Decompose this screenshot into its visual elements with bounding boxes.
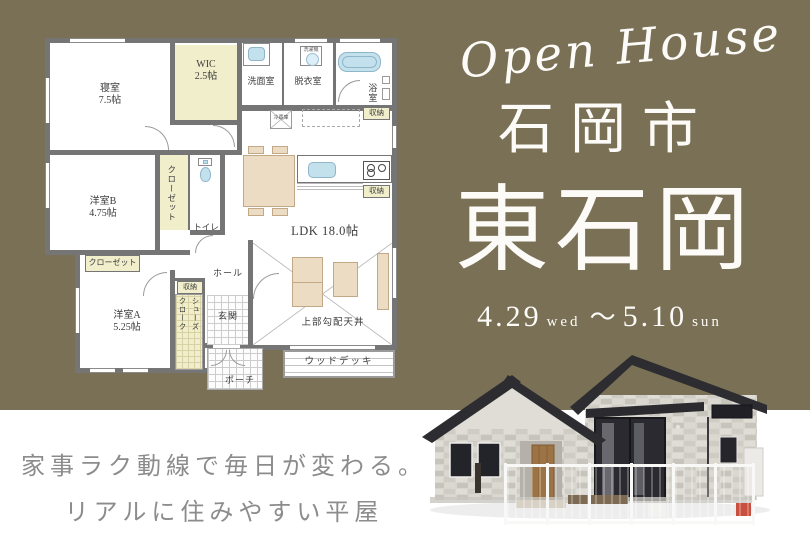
label-bedroom: 寝室 7.5帖 xyxy=(70,83,150,106)
label-entrance: 玄関 xyxy=(208,311,248,321)
label-shoes-closet: クローク シューズ xyxy=(175,297,203,367)
living-table xyxy=(333,262,358,297)
catchcopy-line1: 家事ラク動線で毎日が変わる。 xyxy=(14,446,434,481)
window xyxy=(392,126,397,148)
date-tilde: ～ xyxy=(590,303,619,332)
front-door xyxy=(532,445,554,500)
date-start-num: 4.29 xyxy=(477,300,542,333)
post-box xyxy=(475,463,481,493)
front-window xyxy=(478,443,500,477)
window xyxy=(45,163,50,208)
window xyxy=(290,345,375,350)
label-bath: 浴室 xyxy=(367,78,377,108)
toilet-tank-icon xyxy=(198,158,212,166)
slit-window xyxy=(712,405,752,418)
label-room-a-name: 洋室A xyxy=(87,310,167,322)
label-storage-bath: 収納 xyxy=(363,109,390,118)
wall xyxy=(170,120,237,125)
label-porch: ポーチ xyxy=(217,375,263,385)
room-wic xyxy=(175,45,237,120)
dining-chair xyxy=(272,146,288,154)
planter-red xyxy=(736,503,751,516)
label-room-b: 洋室B 4.75帖 xyxy=(63,196,143,219)
label-shoes-line2: クローク xyxy=(177,297,188,367)
label-wic-size: 2.5帖 xyxy=(175,71,237,83)
label-shoes-line1: シューズ xyxy=(190,297,201,367)
wall xyxy=(203,281,205,370)
area-title: 東石岡 xyxy=(415,184,795,278)
date-end-day: sun xyxy=(692,314,722,330)
kitchen-cabinet-dashed xyxy=(302,109,360,127)
label-washroom: 洗面室 xyxy=(239,76,283,86)
window xyxy=(392,248,397,298)
label-wood-deck: ウッドデッキ xyxy=(285,357,393,368)
dining-chair xyxy=(248,146,264,154)
label-wic: WIC 2.5帖 xyxy=(175,59,237,82)
stove-icon xyxy=(363,161,390,180)
curtain xyxy=(634,423,644,495)
label-sloped-ceiling: 上部勾配天井 xyxy=(283,318,383,329)
window xyxy=(340,38,380,43)
front-window xyxy=(450,443,472,477)
bath-counter-icon xyxy=(382,88,390,100)
label-room-b-size: 4.75帖 xyxy=(63,208,143,220)
house-photo xyxy=(420,345,770,540)
label-ldk: LDK 18.0帖 xyxy=(275,224,375,238)
label-storage-kitchen: 収納 xyxy=(363,187,390,196)
wall xyxy=(188,155,190,230)
dining-chair xyxy=(248,208,264,216)
deck-bench xyxy=(568,495,628,504)
label-storage-hall: 収納 xyxy=(177,283,203,291)
open-house-flyer: 寝室 7.5帖 WIC 2.5帖 洗面室 脱衣室 洗濯機 浴室 収納 冷蔵庫 洋… xyxy=(0,0,810,540)
bathtub-icon xyxy=(338,52,381,72)
planter-white xyxy=(648,503,666,517)
counter-front-lines xyxy=(297,183,363,191)
label-hall: ホール xyxy=(203,268,253,278)
label-laundry: 洗濯機 xyxy=(301,48,321,54)
porch-step xyxy=(516,500,566,508)
label-room-a: 洋室A 5.25帖 xyxy=(87,310,167,333)
window xyxy=(90,368,115,373)
vanity-sink-icon xyxy=(243,43,270,66)
sofa xyxy=(292,257,323,307)
date-start-day: wed xyxy=(547,314,581,330)
label-room-a-size: 5.25帖 xyxy=(87,322,167,334)
small-window xyxy=(720,437,737,463)
date-end-num: 5.10 xyxy=(623,300,688,333)
label-bedroom-size: 7.5帖 xyxy=(70,95,150,107)
label-toilet: トイレ xyxy=(190,223,222,233)
label-fridge: 冷蔵庫 xyxy=(269,116,293,122)
shower-icon xyxy=(382,76,390,84)
wall xyxy=(282,43,284,105)
window xyxy=(123,368,148,373)
label-room-b-name: 洋室B xyxy=(63,196,143,208)
label-bedroom-name: 寝室 xyxy=(70,83,150,95)
window xyxy=(70,38,125,43)
catchcopy-line2: リアルに住みやすい平屋 xyxy=(14,492,434,527)
wall-lamp xyxy=(676,425,680,429)
event-dates: 4.29wed～5.10sun xyxy=(420,297,784,334)
label-dressing: 脱衣室 xyxy=(285,76,331,86)
window xyxy=(75,288,80,333)
wall xyxy=(45,38,50,255)
window xyxy=(295,38,327,43)
label-closet-b: クローゼット xyxy=(166,160,176,226)
window xyxy=(45,78,50,123)
wall xyxy=(333,43,336,107)
toilet-bowl-icon xyxy=(200,167,211,182)
label-closet-a: クローゼット xyxy=(85,258,140,267)
city-title: 石岡市 xyxy=(420,102,792,158)
dining-table xyxy=(243,155,295,207)
dining-chair xyxy=(272,208,288,216)
floor-plan: 寝室 7.5帖 WIC 2.5帖 洗面室 脱衣室 洗濯機 浴室 収納 冷蔵庫 洋… xyxy=(45,38,400,395)
label-wic-name: WIC xyxy=(175,59,237,71)
kitchen-sink-icon xyxy=(308,162,336,178)
tv-board xyxy=(377,253,389,310)
wall xyxy=(50,150,237,155)
wall xyxy=(237,43,242,155)
wall xyxy=(392,38,397,350)
